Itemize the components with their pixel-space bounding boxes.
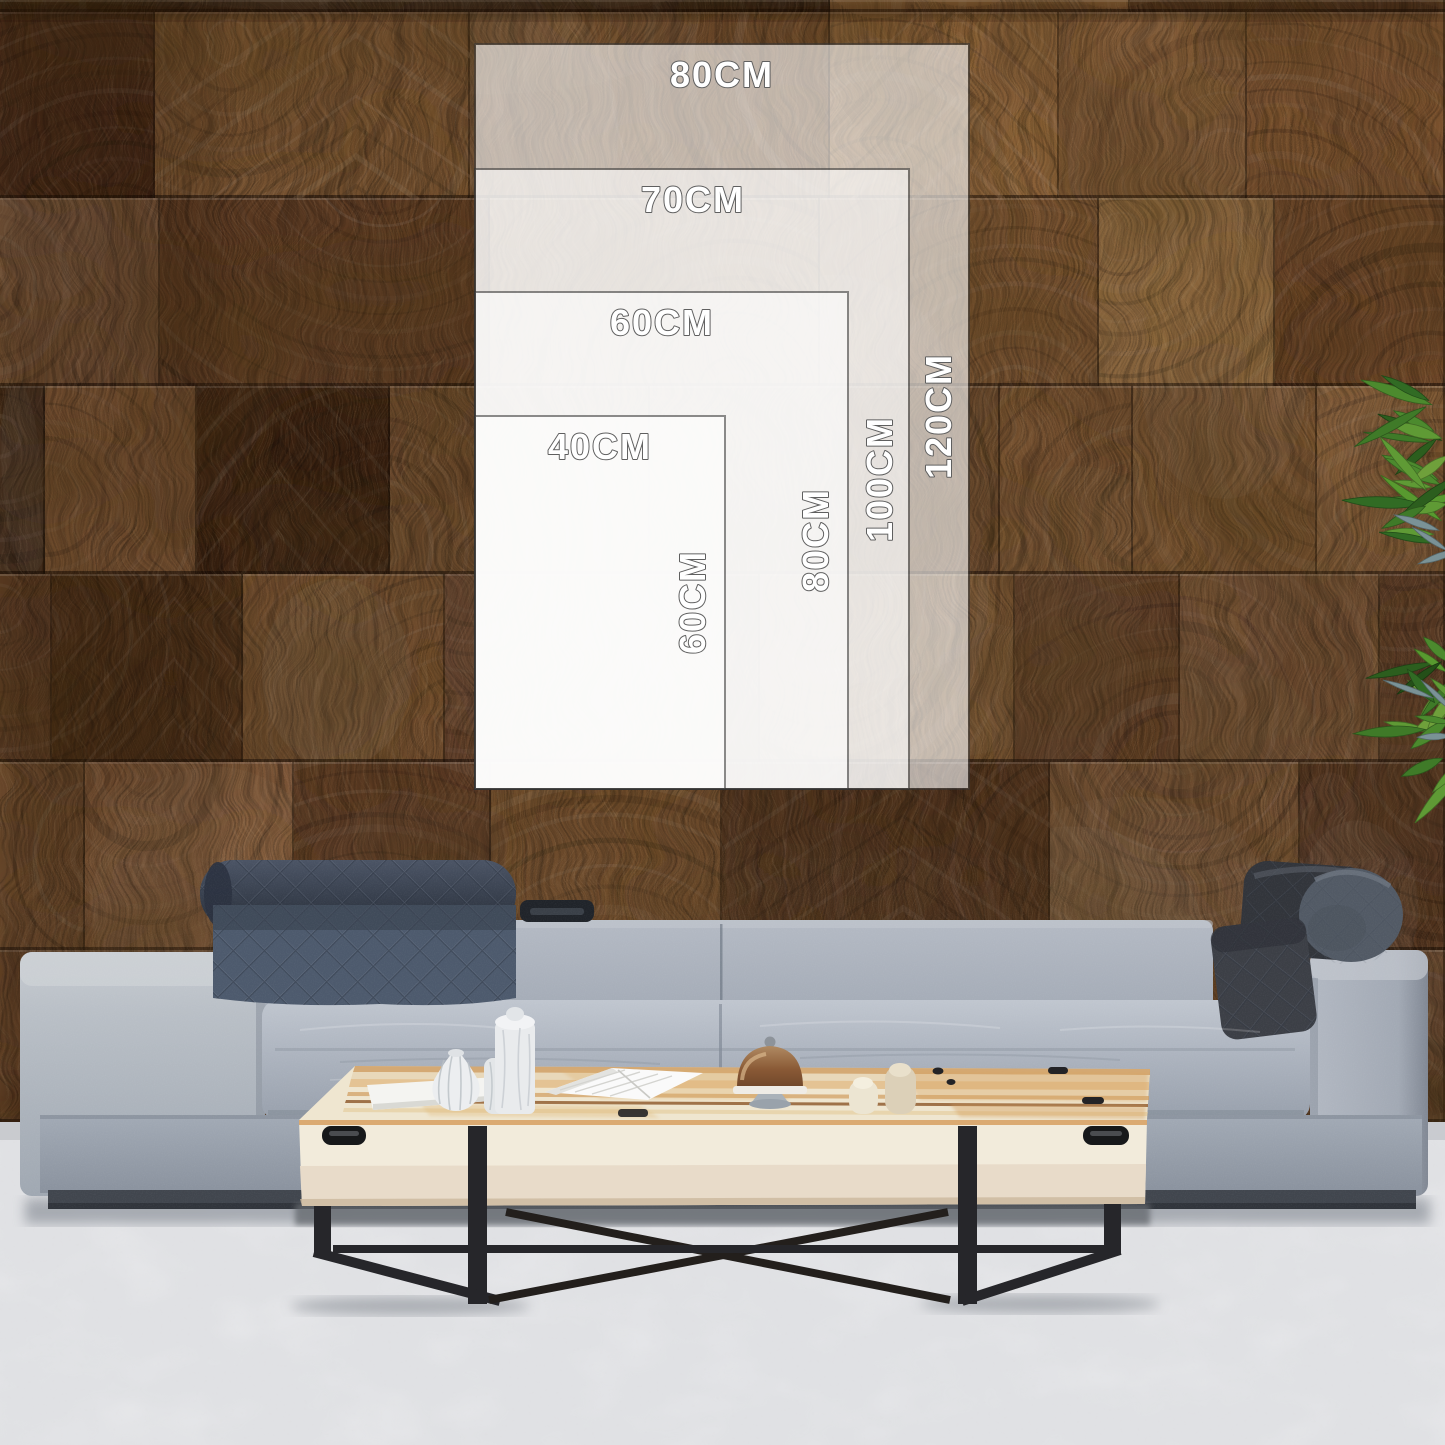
svg-text:70CM: 70CM: [641, 179, 745, 220]
svg-text:60CM: 60CM: [610, 302, 714, 343]
svg-text:100CM: 100CM: [859, 416, 900, 542]
svg-text:60CM: 60CM: [672, 550, 713, 654]
svg-text:120CM: 120CM: [918, 353, 959, 479]
svg-text:40CM: 40CM: [548, 426, 652, 467]
svg-text:80CM: 80CM: [670, 54, 774, 95]
svg-text:80CM: 80CM: [795, 488, 836, 592]
